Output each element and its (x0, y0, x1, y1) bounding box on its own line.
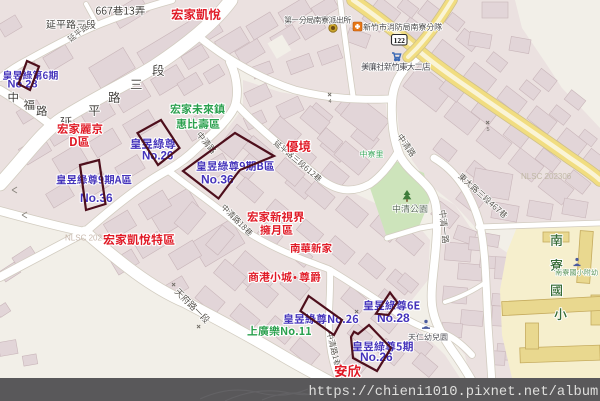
svg-text:122: 122 (394, 36, 406, 45)
svg-text:4: 4 (329, 99, 332, 105)
svg-text:NLSC 202306: NLSC 202306 (521, 172, 572, 181)
svg-text:https://chieni1010.pixnet.net/: https://chieni1010.pixnet.net/album (309, 384, 599, 400)
svg-text:No.28: No.28 (377, 311, 410, 325)
svg-text:5: 5 (487, 127, 490, 133)
